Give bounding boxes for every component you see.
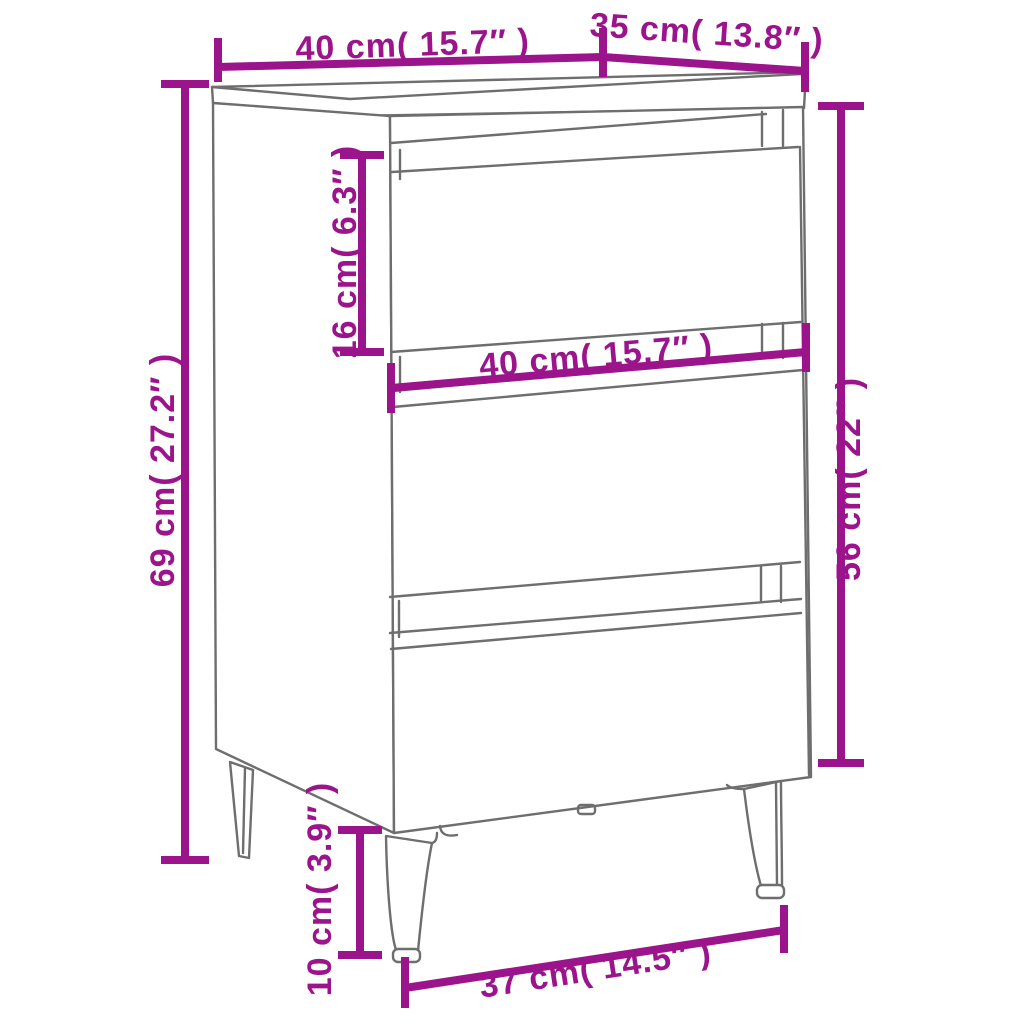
dimension-label-leg-height: 10 cm( 3.9″ ) bbox=[301, 782, 339, 997]
dimension-leg-footprint-width: 37 cm( 14.5″ ) bbox=[405, 905, 784, 1008]
dimension-body-height: 56 cm( 22″ ) bbox=[818, 106, 868, 763]
leg-contour-line bbox=[776, 783, 777, 884]
dimension-label-top-depth: 35 cm( 13.8″ ) bbox=[589, 6, 825, 60]
diagram-canvas: 40 cm( 15.7″ ) 35 cm( 13.8″ ) 69 cm( 27.… bbox=[0, 0, 1024, 1024]
dimension-label-total-height: 69 cm( 27.2″ ) bbox=[144, 353, 182, 587]
dimension-label-body-height: 56 cm( 22″ ) bbox=[830, 377, 868, 581]
leg-back-left bbox=[230, 762, 253, 858]
dimension-total-height: 69 cm( 27.2″ ) bbox=[144, 84, 209, 860]
leg-cone bbox=[386, 836, 432, 951]
leg-cone bbox=[230, 762, 253, 858]
leg-foot bbox=[757, 885, 784, 898]
dimension-line bbox=[338, 830, 382, 955]
dimension-label-top-drawer-height: 16 cm( 6.3″ ) bbox=[326, 145, 364, 360]
cabinet-front-face bbox=[390, 107, 811, 833]
leg-front-right bbox=[727, 781, 784, 898]
leg-front-left bbox=[386, 833, 437, 962]
dimension-label-leg-footprint-width: 37 cm( 14.5″ ) bbox=[477, 932, 714, 1005]
dimension-top-width: 40 cm( 15.7″ ) bbox=[218, 22, 603, 82]
cabinet-left-panel bbox=[213, 103, 394, 833]
product-dimension-diagram: 40 cm( 15.7″ ) 35 cm( 13.8″ ) 69 cm( 27.… bbox=[0, 0, 1024, 1024]
leg-bracket-step bbox=[432, 833, 437, 843]
